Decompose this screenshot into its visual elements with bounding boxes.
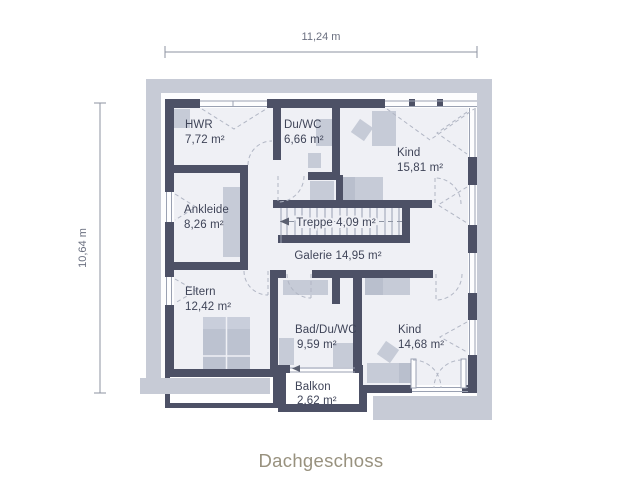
room-area: 15,81 m² bbox=[397, 162, 443, 174]
room-area: 7,72 m² bbox=[185, 134, 225, 146]
bad-vanity bbox=[283, 280, 328, 295]
width-dimension-label: 11,24 m bbox=[302, 31, 341, 43]
french-door-leaf bbox=[411, 359, 416, 388]
room-name: Bad/Du/WC bbox=[295, 324, 357, 336]
ankleide-wardrobe bbox=[223, 187, 240, 257]
french-door-leaf bbox=[461, 359, 466, 388]
width-dimension-line bbox=[165, 46, 477, 58]
page-title: Dachgeschoss bbox=[259, 450, 384, 471]
bad-shower bbox=[279, 338, 294, 365]
lower-terrace-roof bbox=[140, 378, 270, 394]
room-name: Kind bbox=[397, 147, 420, 159]
room-label-treppe: Treppe 4,09 m² bbox=[296, 217, 376, 229]
room-area: 14,68 m² bbox=[398, 339, 444, 351]
room-area: 2,62 m² bbox=[297, 395, 337, 407]
room-name: Eltern bbox=[185, 286, 216, 298]
room-name: Balkon bbox=[295, 381, 331, 393]
height-dimension-line bbox=[94, 103, 106, 393]
floor-plan-drawing: HWR 7,72 m² Du/WC 6,66 m² Kind 15,81 m² … bbox=[0, 0, 640, 480]
room-area: 8,26 m² bbox=[184, 219, 224, 231]
kind-top-desk bbox=[372, 111, 396, 146]
duwc-sink bbox=[308, 153, 321, 168]
closet-block bbox=[310, 181, 334, 202]
room-name: Kind bbox=[398, 324, 421, 336]
floor-plan-page: HWR 7,72 m² Du/WC 6,66 m² Kind 15,81 m² … bbox=[0, 0, 640, 480]
room-label-galerie: Galerie 14,95 m² bbox=[294, 250, 381, 262]
room-area: 9,59 m² bbox=[297, 339, 337, 351]
height-dimension-label: 10,64 m bbox=[77, 228, 89, 268]
room-name: Du/WC bbox=[284, 119, 322, 131]
room-area: 6,66 m² bbox=[284, 134, 324, 146]
kind-bottom-desk-chair bbox=[365, 278, 383, 295]
room-name: Ankleide bbox=[184, 204, 229, 216]
room-area: 12,42 m² bbox=[185, 301, 231, 313]
kind-top-bed-pillow bbox=[343, 177, 355, 203]
room-name: HWR bbox=[185, 119, 213, 131]
